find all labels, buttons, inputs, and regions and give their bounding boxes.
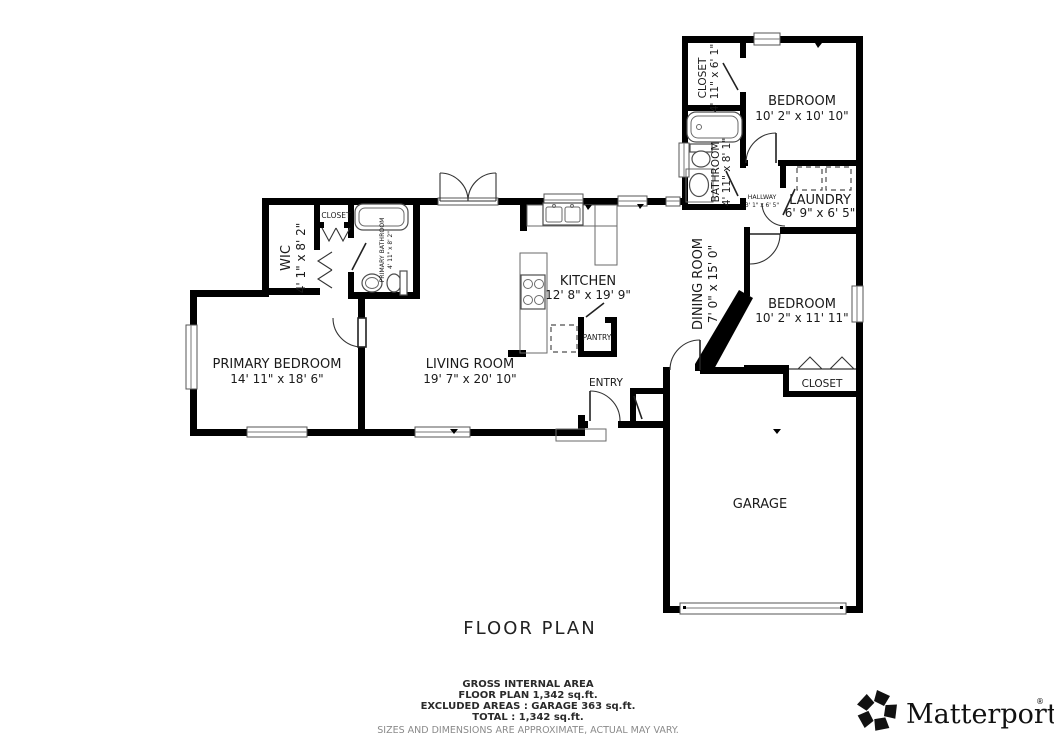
window (754, 33, 780, 45)
window (247, 427, 307, 437)
area-summary-line: EXCLUDED AREAS : GARAGE 363 sq.ft. (421, 701, 636, 712)
room-label-pantry: PANTRY (583, 333, 612, 342)
bathtub (687, 112, 742, 142)
area-summary-line: FLOOR PLAN 1,342 sq.ft. (458, 690, 597, 701)
room-label-closet-bedroom-right: CLOSET (802, 378, 843, 390)
door-bedroom-right (750, 234, 780, 264)
brand-wordmark: Matterport (906, 699, 1054, 730)
door-front-entry (590, 391, 620, 421)
disclaimer-text: SIZES AND DIMENSIONS ARE APPROXIMATE, AC… (377, 725, 678, 736)
room-dims: 4' 11" x 6' 1" (709, 44, 721, 112)
room-dims: 12' 8" x 19' 9" (545, 288, 631, 302)
washer (797, 167, 822, 190)
room-dims: 10' 2" x 11' 11" (755, 311, 848, 325)
room-name: PRIMARY BATHROOM (379, 218, 386, 283)
room-name: ENTRY (589, 377, 624, 389)
room-dims: 3' 1" x 6' 5" (745, 203, 779, 209)
window (679, 143, 689, 177)
room-name: LIVING ROOM (426, 357, 514, 372)
kitchen-sink (543, 203, 583, 225)
dryer (826, 167, 851, 190)
matterport-pinwheel-icon (854, 690, 901, 736)
room-dims: 4' 1" x 8' 2" (294, 223, 308, 294)
french-doors (438, 173, 498, 205)
room-name: PANTRY (583, 333, 612, 342)
room-label-hallway: HALLWAY 3' 1" x 6' 5" (745, 194, 779, 209)
room-dims: 7' 0" x 15' 0" (706, 245, 720, 323)
window (666, 197, 680, 206)
brand-logo: Matterport ® (854, 690, 1054, 736)
room-name: HALLWAY (748, 194, 777, 201)
door-closet-top-right (723, 63, 738, 90)
area-summary-line: TOTAL : 1,342 sq.ft. (472, 712, 583, 723)
floor-plan-page: CLOSET 4' 11" x 6' 1" BEDROOM 10' 2" x 1… (0, 0, 1054, 745)
room-label-closet-top-right: CLOSET 4' 11" x 6' 1" (697, 44, 721, 112)
room-name: CLOSET (321, 211, 351, 220)
room-label-entry: ENTRY (589, 377, 624, 389)
room-label-dining-room: DINING ROOM 7' 0" x 15' 0" (691, 238, 720, 330)
floor-plan-drawing: CLOSET 4' 11" x 6' 1" BEDROOM 10' 2" x 1… (0, 0, 1054, 745)
bifold-doors-closet-bedroom-right (789, 357, 856, 369)
window (415, 427, 470, 437)
door-bedroom-top (746, 133, 776, 163)
garage-door (680, 603, 846, 614)
bifold-doors-hall-closet (322, 228, 350, 241)
room-label-garage: GARAGE (733, 497, 787, 512)
room-name: CLOSET (697, 57, 709, 98)
room-name: BEDROOM (768, 297, 836, 312)
room-label-bedroom-right: BEDROOM 10' 2" x 11' 11" (755, 297, 848, 325)
room-dims: 4' 11" x 8' 1" (721, 138, 733, 206)
door-pantry (586, 303, 604, 317)
sink-bathroom (686, 169, 713, 202)
room-dims: 19' 7" x 20' 10" (423, 372, 516, 386)
toilet (690, 144, 712, 167)
door-primary-bathroom (352, 243, 366, 270)
room-label-wic: WIC 4' 1" x 8' 2" (279, 223, 308, 294)
room-name: PRIMARY BEDROOM (213, 357, 342, 372)
footer: FLOOR PLAN GROSS INTERNAL AREA FLOOR PLA… (377, 618, 678, 736)
room-label-closet-hall: CLOSET (321, 211, 351, 220)
toilet-primary (387, 271, 407, 295)
room-label-primary-bedroom: PRIMARY BEDROOM 14' 11" x 18' 6" (213, 357, 342, 386)
room-name: GARAGE (733, 497, 787, 512)
room-name: BEDROOM (768, 94, 836, 109)
registered-trademark-icon: ® (1036, 697, 1044, 706)
room-name: CLOSET (802, 378, 843, 390)
page-title: FLOOR PLAN (463, 618, 596, 639)
room-dims: 6' 9" x 6' 5" (785, 206, 856, 220)
dishwasher (551, 325, 577, 352)
room-name: KITCHEN (560, 274, 616, 289)
window (852, 286, 863, 322)
area-summary-line: GROSS INTERNAL AREA (462, 679, 594, 690)
room-label-bedroom-top: BEDROOM 10' 2" x 10' 10" (755, 94, 848, 123)
room-dims: 14' 11" x 18' 6" (230, 372, 323, 386)
room-label-living-room: LIVING ROOM 19' 7" x 20' 10" (423, 357, 516, 386)
room-label-bathroom: BATHROOM 4' 11" x 8' 1" (710, 138, 733, 206)
bifold-doors-wic (318, 252, 332, 288)
room-label-laundry: LAUNDRY 6' 9" x 6' 5" (785, 193, 856, 220)
door-primary-bedroom (333, 318, 366, 347)
room-name: DINING ROOM (691, 238, 706, 330)
room-label-kitchen: KITCHEN 12' 8" x 19' 9" (545, 274, 631, 302)
room-name: WIC (279, 245, 294, 271)
room-dims: 10' 2" x 10' 10" (755, 109, 848, 123)
room-dims: 4' 11" x 8' 2" (388, 231, 394, 269)
stove (521, 275, 545, 309)
window (186, 325, 197, 389)
